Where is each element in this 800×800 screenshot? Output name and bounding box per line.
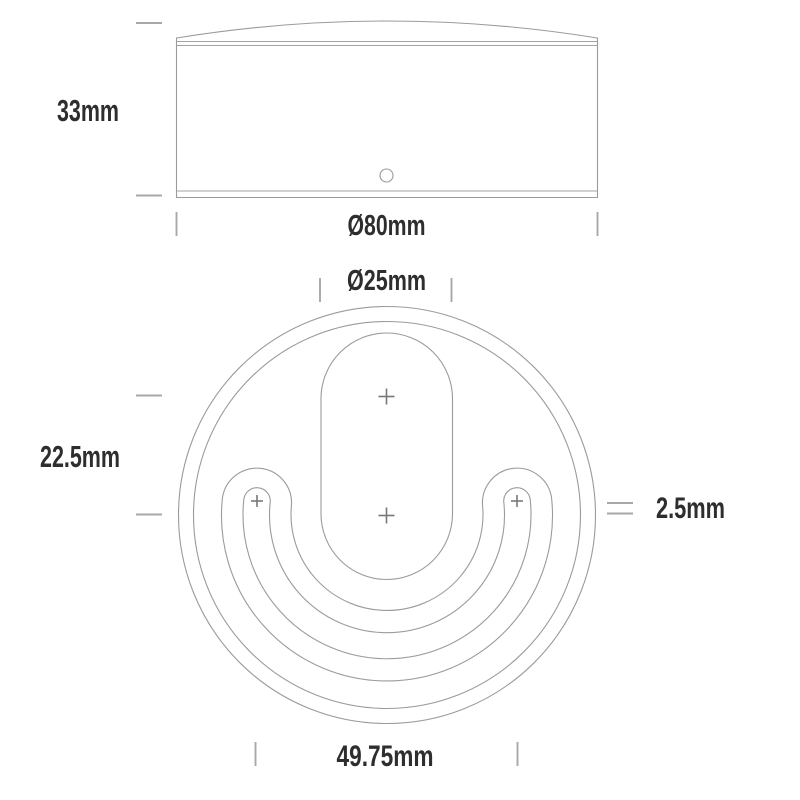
slot-span-dimension: 49.75mm xyxy=(256,740,518,773)
top-view-center-pill xyxy=(321,333,453,580)
top-hole-crosshair xyxy=(379,389,395,405)
ring-gap-dimension: 2.5mm xyxy=(607,492,725,525)
slot-span-label: 49.75mm xyxy=(337,740,434,773)
left-slot-crosshair xyxy=(251,495,263,507)
outer-diameter-dimension: Ø80mm xyxy=(177,210,598,242)
dimension-drawing-svg: 33mm Ø80mm xyxy=(0,0,800,800)
outer-diameter-label: Ø80mm xyxy=(348,210,426,242)
top-view-channel-outline xyxy=(222,468,553,681)
dimension-drawing-canvas: 33mm Ø80mm xyxy=(0,0,800,800)
pocket-width-dimension: Ø25mm xyxy=(320,265,452,302)
height-dimension: 33mm xyxy=(57,23,162,196)
height-dimension-label: 33mm xyxy=(57,93,119,128)
center-hole-crosshair xyxy=(379,508,395,524)
side-view-button-circle xyxy=(380,169,393,182)
pocket-width-label: Ø25mm xyxy=(347,265,426,297)
ring-gap-label: 2.5mm xyxy=(656,492,725,525)
side-view xyxy=(177,21,598,198)
hole-offset-dimension: 22.5mm xyxy=(40,396,162,515)
top-view xyxy=(179,307,596,724)
hole-offset-label: 22.5mm xyxy=(40,439,120,474)
right-slot-crosshair xyxy=(511,495,523,507)
side-view-body-outline xyxy=(177,21,598,198)
